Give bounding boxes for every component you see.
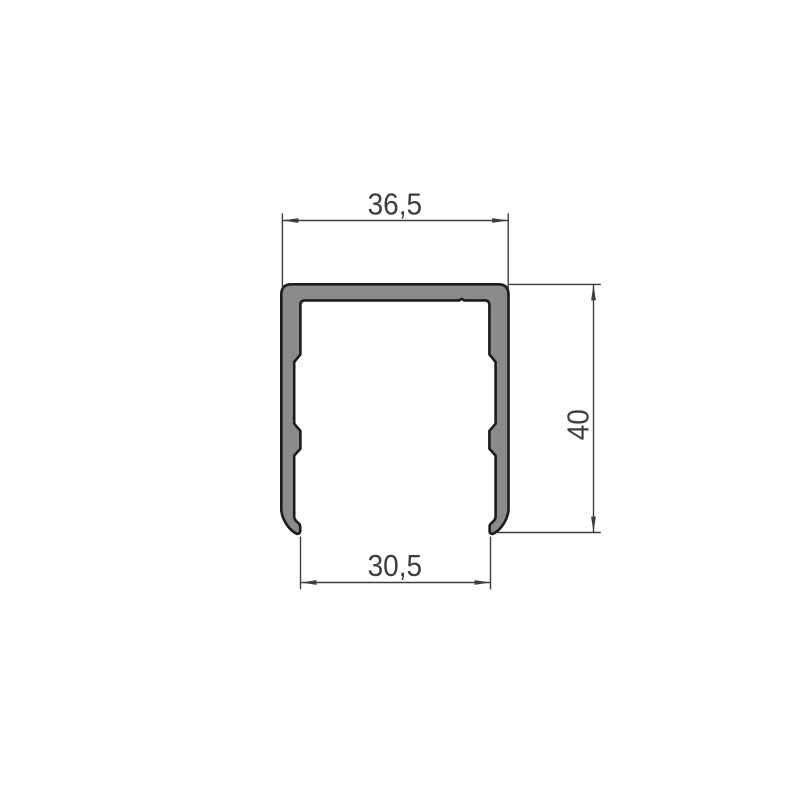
svg-text:40: 40 — [562, 409, 595, 440]
svg-text:30,5: 30,5 — [368, 550, 422, 583]
svg-text:36,5: 36,5 — [368, 188, 422, 221]
